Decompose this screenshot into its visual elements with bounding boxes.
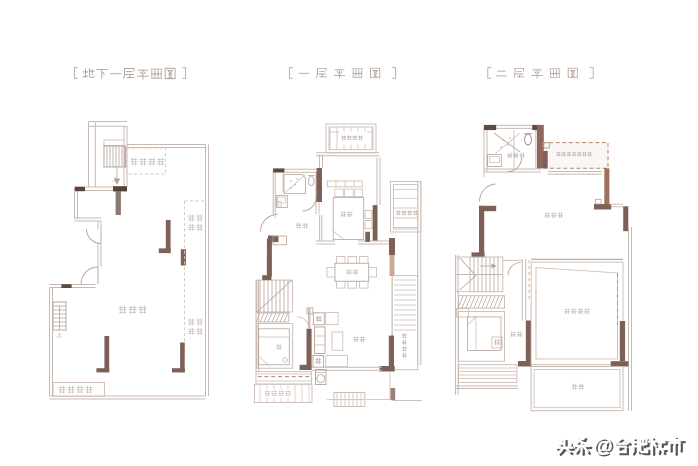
svg-text:@: @: [593, 435, 613, 457]
